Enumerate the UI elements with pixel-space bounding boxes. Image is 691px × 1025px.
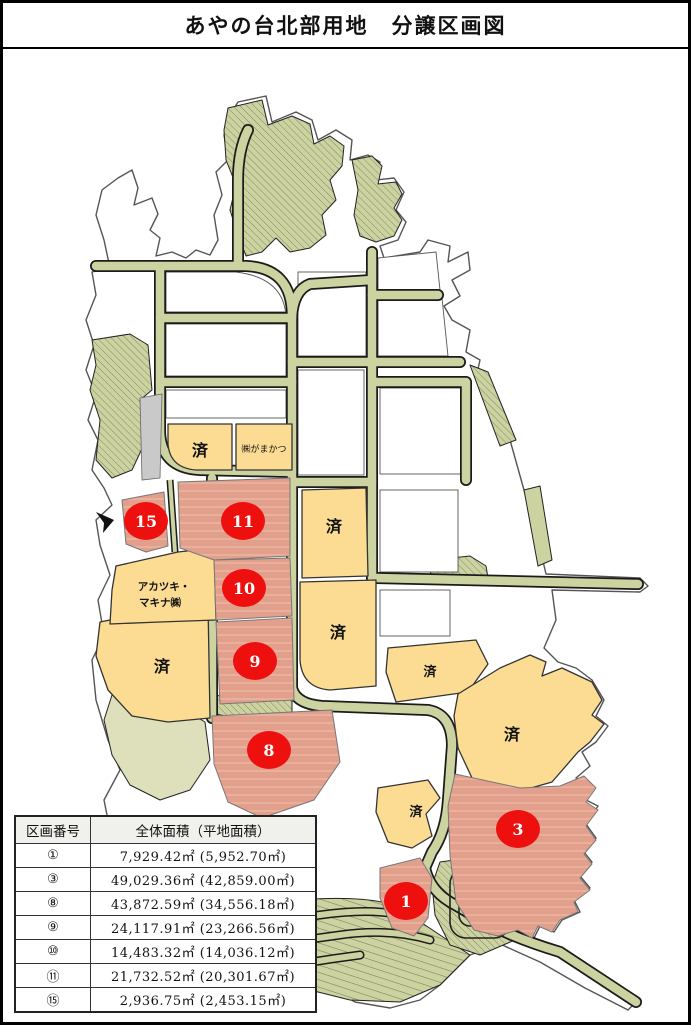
table-row: ⑨ 24,117.91㎡ (23,266.56㎡) [15,916,316,940]
lot-area: 49,029.36㎡ (42,859.00㎡) [91,868,317,892]
lot-no: ⑪ [15,964,91,988]
table-row: ⑮ 2,936.75㎡ (2,453.15㎡) [15,988,316,1013]
lot-no: ⑨ [15,916,91,940]
gray-strip [140,394,162,480]
marker-10: 10 [233,579,255,598]
page-frame: あやの台北部用地 分譲区画図 [0,0,691,1025]
col-header-lot-no: 区画番号 [15,816,91,844]
marker-9: 9 [249,652,260,671]
lot-no: ⑧ [15,892,91,916]
company-akatsuki-label-1: アカツキ・ [138,581,191,593]
lot-no: ① [15,844,91,868]
lot-area: 43,872.59㎡ (34,556.18㎡) [91,892,317,916]
area-table: 区画番号 全体面積（平地面積） ① 7,929.42㎡ (5,952.70㎡) … [14,815,317,1013]
company-gamakatsu-label: ㈱がまかつ [241,443,286,455]
table-row: ⑧ 43,872.59㎡ (34,556.18㎡) [15,892,316,916]
lot-no: ⑮ [15,988,91,1013]
lot-area: 21,732.52㎡ (20,301.67㎡) [91,964,317,988]
lot-area: 2,936.75㎡ (2,453.15㎡) [91,988,317,1013]
title-bar: あやの台北部用地 分譲区画図 [3,3,688,49]
sold-label: 済 [192,441,209,460]
lot-area: 24,117.91㎡ (23,266.56㎡) [91,916,317,940]
lot-no: ③ [15,868,91,892]
marker-8: 8 [263,741,274,760]
table-row: ⑩ 14,483.32㎡ (14,036.12㎡) [15,940,316,964]
sold-label: 済 [330,623,347,642]
marker-1: 1 [400,892,411,911]
lot-area: 14,483.32㎡ (14,036.12㎡) [91,940,317,964]
sold-label: 済 [409,804,423,820]
table-row: ⑪ 21,732.52㎡ (20,301.67㎡) [15,964,316,988]
marker-3: 3 [512,820,523,839]
page-title: あやの台北部用地 分譲区画図 [185,10,507,40]
col-header-area: 全体面積（平地面積） [91,816,317,844]
table-row: ① 7,929.42㎡ (5,952.70㎡) [15,844,316,868]
sold-label: 済 [154,657,171,676]
table-row: ③ 49,029.36㎡ (42,859.00㎡) [15,868,316,892]
sold-label: 済 [326,517,343,536]
parcel-3 [448,774,598,938]
marker-11: 11 [232,512,254,531]
marker-15: 15 [135,512,157,531]
sold-label: 済 [504,725,521,744]
sold-label: 済 [423,664,437,680]
lot-area: 7,929.42㎡ (5,952.70㎡) [91,844,317,868]
lot-no: ⑩ [15,940,91,964]
company-akatsuki-label-2: マキナ㈱ [139,596,181,609]
